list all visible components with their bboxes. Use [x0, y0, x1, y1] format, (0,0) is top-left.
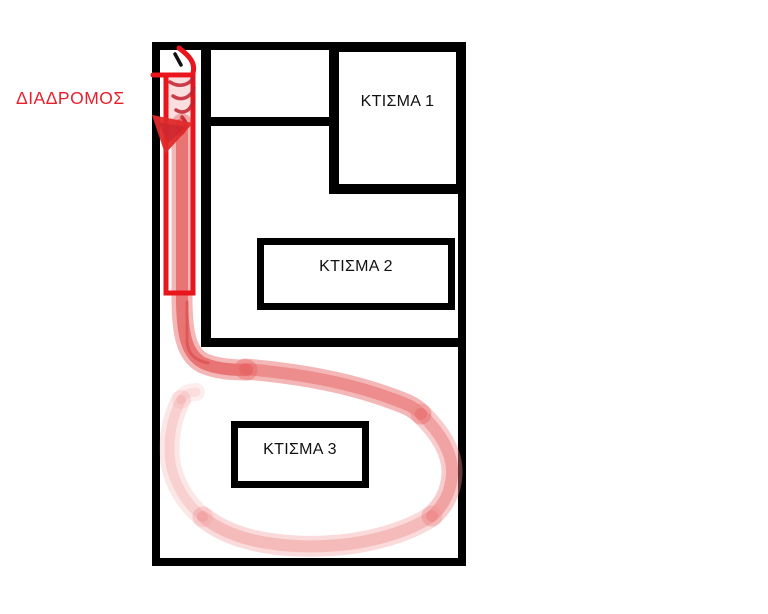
building-3-label: ΚΤΙΣΜΑ 3 — [238, 441, 362, 459]
top-room-bottom-wall — [201, 117, 339, 126]
middle-room-bottom-wall — [201, 338, 466, 347]
building-1-box — [329, 42, 466, 194]
building-1-label: ΚΤΙΣΜΑ 1 — [339, 93, 456, 111]
site-plan-canvas: ΔΙΑΔΡΟΜΟΣ ΚΤΙΣΜΑ 1 ΚΤΙΣΜΑ 2 ΚΤΙΣΜΑ 3 — [0, 0, 768, 614]
corridor-inner-wall — [201, 48, 211, 346]
corridor-label: ΔΙΑΔΡΟΜΟΣ — [16, 88, 125, 109]
building-2-label: ΚΤΙΣΜΑ 2 — [264, 258, 448, 276]
